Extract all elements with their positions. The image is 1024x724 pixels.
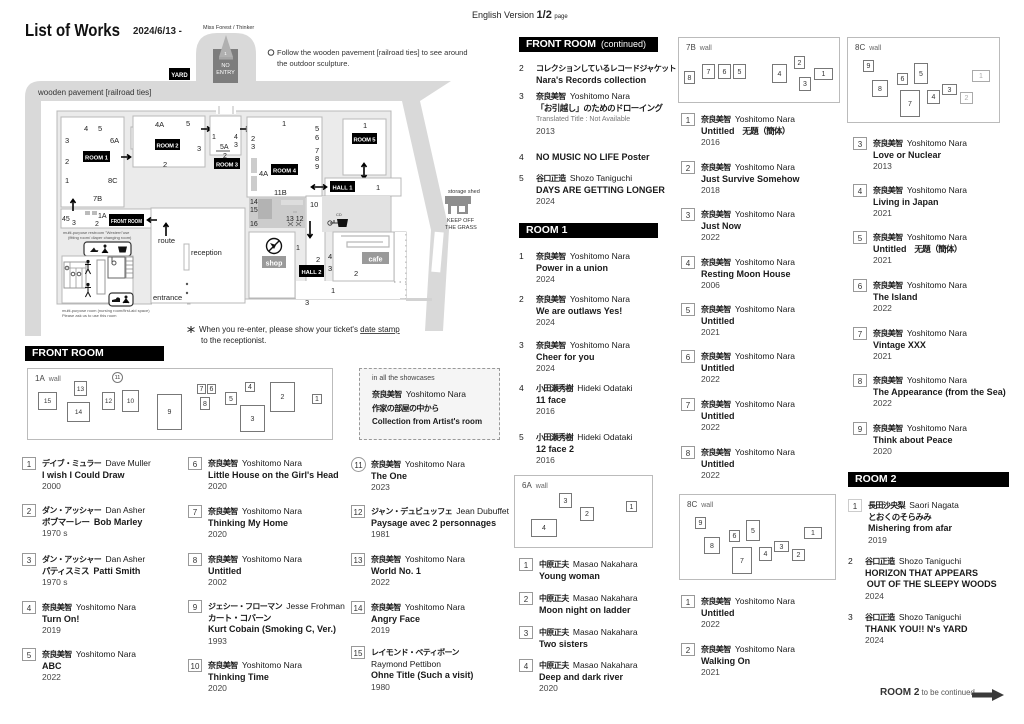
svg-text:2: 2: [354, 269, 358, 278]
svg-text:HALL 1: HALL 1: [333, 186, 354, 192]
svg-text:6: 6: [315, 133, 319, 142]
svg-text:3: 3: [197, 144, 201, 153]
svg-text:1: 1: [376, 183, 380, 192]
svg-text:When you re-enter, please show: When you re-enter, please show your tick…: [199, 325, 400, 334]
svg-text:5: 5: [186, 119, 190, 128]
svg-text:CD: CD: [336, 212, 342, 217]
svg-text:wooden pavement [railroad ties: wooden pavement [railroad ties]: [37, 88, 151, 97]
svg-text:the outdoor sculpture.: the outdoor sculpture.: [277, 59, 350, 68]
svg-text:route: route: [158, 236, 175, 245]
svg-text:1: 1: [296, 245, 300, 252]
svg-text:1: 1: [331, 286, 335, 295]
svg-text:Miss Forest / Thinker: Miss Forest / Thinker: [203, 25, 254, 31]
svg-text:3: 3: [234, 142, 238, 149]
svg-text:2: 2: [65, 157, 69, 166]
svg-text:4: 4: [328, 252, 332, 261]
svg-text:1A: 1A: [98, 213, 107, 220]
svg-text:YARD: YARD: [171, 73, 188, 79]
svg-text:cafe: cafe: [368, 257, 382, 264]
svg-text:4: 4: [84, 124, 88, 133]
svg-text:45: 45: [62, 216, 70, 223]
svg-text:Follow the wooden pavement [ra: Follow the wooden pavement [railroad tie…: [277, 48, 468, 57]
svg-text:5A: 5A: [220, 144, 229, 151]
svg-text:ROOM 4: ROOM 4: [273, 169, 297, 175]
svg-text:ROOM 2: ROOM 2: [157, 144, 179, 150]
svg-text:10: 10: [310, 200, 318, 209]
svg-text:7B: 7B: [93, 194, 102, 203]
svg-text:3: 3: [305, 298, 309, 307]
svg-text:1: 1: [65, 176, 69, 185]
svg-text:3: 3: [251, 142, 255, 151]
svg-text:THE GRASS: THE GRASS: [445, 225, 477, 231]
svg-text:16: 16: [250, 221, 258, 228]
svg-text:2: 2: [163, 160, 167, 169]
svg-text:2: 2: [95, 221, 99, 228]
svg-text:storage shed: storage shed: [448, 189, 480, 195]
svg-text:ROOM 5: ROOM 5: [354, 138, 377, 144]
svg-text:(fitting room/ diaper changing: (fitting room/ diaper changing room): [68, 235, 132, 240]
svg-text:Please ask us to use this room: Please ask us to use this room: [62, 313, 117, 318]
svg-text:3: 3: [65, 136, 69, 145]
svg-text:FRONT ROOM: FRONT ROOM: [111, 219, 142, 225]
svg-text:15: 15: [250, 207, 258, 214]
svg-text:entrance: entrance: [153, 293, 182, 302]
svg-text:3: 3: [328, 264, 332, 273]
svg-text:4A: 4A: [155, 120, 164, 129]
svg-text:1: 1: [282, 119, 286, 128]
svg-text:to the receptionist.: to the receptionist.: [201, 336, 266, 345]
svg-text:reception: reception: [191, 248, 222, 257]
svg-text:ROOM 3: ROOM 3: [216, 163, 239, 169]
svg-text:8C: 8C: [108, 176, 118, 185]
svg-text:6A: 6A: [110, 136, 119, 145]
svg-text:HALL 2: HALL 2: [302, 270, 322, 276]
svg-text:1: 1: [363, 121, 367, 130]
svg-text:3: 3: [72, 220, 76, 227]
svg-text:ENTRY: ENTRY: [216, 70, 235, 76]
svg-text:ROOM 1: ROOM 1: [85, 156, 109, 162]
svg-text:14: 14: [250, 199, 258, 206]
svg-text:4: 4: [234, 134, 238, 141]
svg-text:4A: 4A: [259, 169, 268, 178]
svg-text:NO: NO: [221, 63, 230, 69]
svg-text:5: 5: [98, 124, 102, 133]
svg-text:5: 5: [315, 124, 319, 133]
svg-text:11B: 11B: [274, 188, 287, 197]
svg-text:13 12: 13 12: [286, 216, 304, 223]
svg-text:9: 9: [315, 162, 319, 171]
svg-text:KEEP OFF: KEEP OFF: [447, 218, 475, 224]
svg-text:1: 1: [212, 134, 216, 141]
svg-text:shop: shop: [266, 261, 283, 268]
svg-text:2: 2: [316, 255, 320, 264]
